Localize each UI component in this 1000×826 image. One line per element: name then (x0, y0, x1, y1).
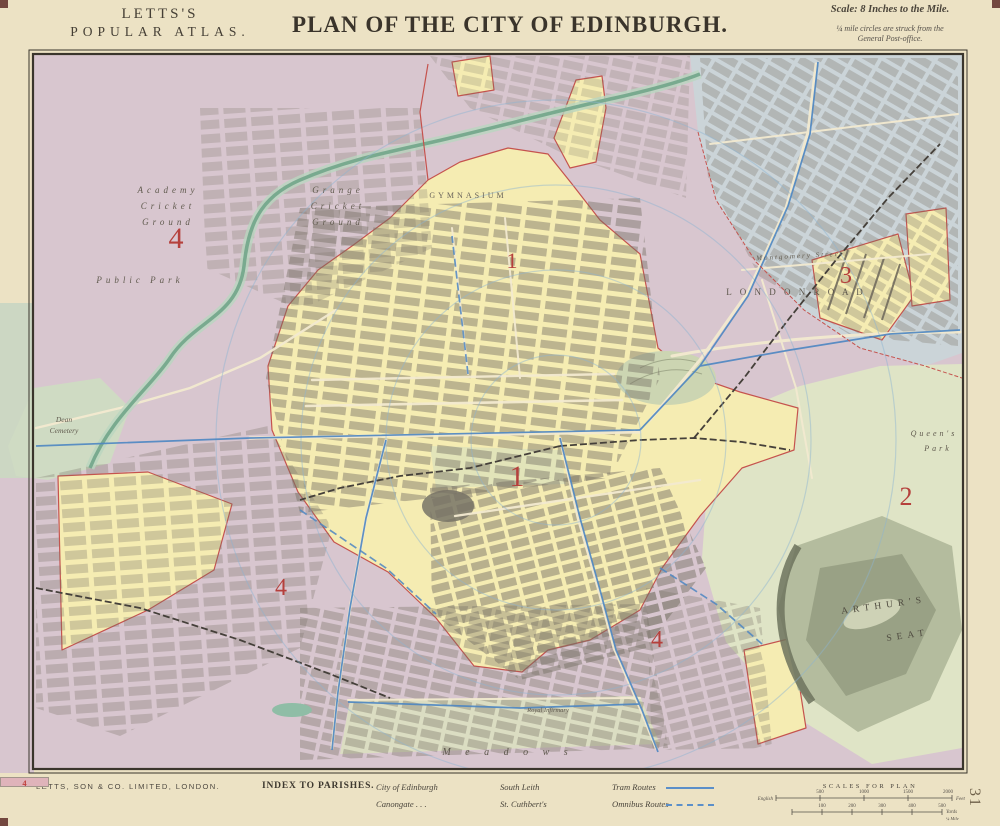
parish-label-south-leith: South Leith (500, 782, 539, 792)
feet-unit: Feet (955, 797, 965, 802)
circles-note-line1: ¼ mile circles are struck from the (790, 24, 990, 34)
page-corner-mark (0, 0, 8, 8)
legend-bar: LETTS, SON & CO. LIMITED, LONDON. INDEX … (0, 777, 1000, 826)
scale-note: Scale: 8 Inches to the Mile. (790, 4, 990, 15)
plate-number: 31 (965, 788, 983, 808)
publisher: LETTS, SON & CO. LIMITED, LONDON. (36, 782, 220, 791)
label-london-road: L O N D O N R O A D (726, 287, 865, 297)
omnibus-routes-line (666, 804, 714, 806)
label-public-park: Public Park (95, 275, 183, 285)
page-corner-mark (992, 0, 1000, 8)
label-academy-1: Academy (137, 185, 199, 195)
feet-scale-left: English (757, 797, 774, 802)
yards-tick: 100 (818, 804, 826, 809)
yards-tick: 300 (878, 804, 886, 809)
yards-scale-labels: 100 200 300 400 500 Yards ¼ Mile (818, 804, 959, 821)
circles-note-line2: General Post-office. (790, 34, 990, 44)
feet-tick: 2000 (943, 790, 954, 795)
tram-routes-line (666, 787, 714, 789)
feet-tick: 500 (816, 790, 824, 795)
label-meadows: M e a d o w s (441, 747, 573, 758)
label-grange-1: Grange (312, 185, 364, 195)
quarter-mile-note: ¼ Mile (946, 816, 959, 821)
parish-swatch-st-cuthberts: 4 (0, 777, 49, 787)
numeral-north: 1 (507, 248, 518, 273)
label-queens-park-1: Queen's (911, 429, 958, 438)
feet-scale-bar (776, 795, 952, 801)
numeral-ne: 3 (840, 263, 852, 289)
scales-for-plan: SCALES FOR PLAN English 500 1000 1500 20… (752, 779, 982, 823)
label-grange-3: Ground (312, 217, 364, 227)
numeral-sw: 4 (275, 575, 287, 601)
yards-tick: 200 (848, 804, 856, 809)
label-gymnasium: GYMNASIUM (429, 191, 506, 200)
yards-unit: Yards (946, 810, 957, 815)
numeral-center: 1 (510, 460, 525, 493)
yards-tick: 500 (938, 804, 946, 809)
label-dean-cemetery-1: Dean (55, 415, 72, 424)
label-dean-cemetery-2: Cemetery (50, 426, 79, 435)
index-to-parishes-title: INDEX TO PARISHES. (262, 781, 374, 791)
page-title: PLAN OF THE CITY OF EDINBURGH. (250, 12, 770, 38)
edinburgh-map: 4 1 3 1 2 4 4 Academy Cricket Ground Gra… (0, 48, 1000, 777)
yards-tick: 400 (908, 804, 916, 809)
parish-label-st-cuthberts: St. Cuthbert's (500, 799, 547, 809)
feet-tick: 1500 (903, 790, 914, 795)
yards-scale-bar (792, 809, 942, 815)
label-academy-2: Cricket (141, 201, 196, 211)
feet-scale-labels: English 500 1000 1500 2000 Feet (757, 790, 966, 802)
feet-tick: 1000 (859, 790, 870, 795)
numeral-south: 4 (651, 627, 663, 653)
label-grange-2: Cricket (311, 201, 366, 211)
parish-label-canongate: Canongate . . . (376, 799, 427, 809)
label-queens-park-2: Park (923, 444, 952, 453)
numeral-east: 2 (900, 482, 913, 511)
scales-title: SCALES FOR PLAN (823, 783, 918, 790)
tram-routes-label: Tram Routes (612, 782, 656, 792)
omnibus-routes-label: Omnibus Routes (612, 799, 669, 809)
parish-label-city: City of Edinburgh (376, 782, 438, 792)
label-royal-infirmary: Royal Infirmary (526, 707, 569, 714)
circles-note: ¼ mile circles are struck from the Gener… (790, 24, 990, 43)
label-academy-3: Ground (142, 217, 194, 227)
